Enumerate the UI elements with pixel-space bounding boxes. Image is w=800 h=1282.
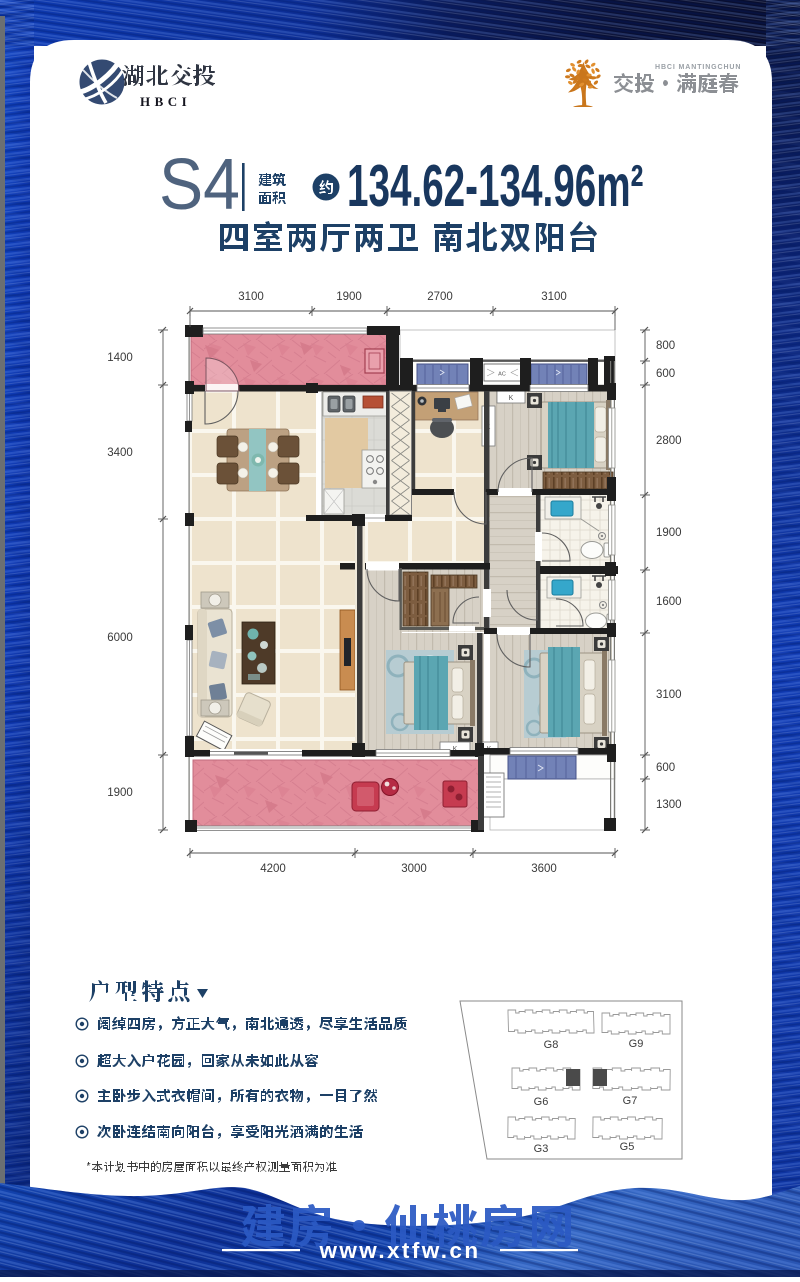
svg-text:600: 600 (656, 762, 675, 774)
svg-text:G9: G9 (629, 1038, 644, 1050)
svg-text:3600: 3600 (531, 863, 557, 875)
svg-text:6000: 6000 (107, 632, 133, 644)
svg-text:1300: 1300 (656, 799, 682, 811)
svg-text:G3: G3 (534, 1143, 549, 1155)
svg-text:2700: 2700 (427, 291, 453, 303)
svg-text:4200: 4200 (260, 863, 286, 875)
svg-text:HBCI MANTINGCHUN: HBCI MANTINGCHUN (655, 64, 741, 71)
svg-text:www.xtfw.cn: www.xtfw.cn (319, 1238, 481, 1263)
svg-text:S4: S4 (159, 143, 240, 224)
svg-text:AC: AC (498, 372, 506, 378)
svg-text:1900: 1900 (107, 787, 133, 799)
svg-text:1900: 1900 (336, 291, 362, 303)
svg-text:800: 800 (656, 340, 675, 352)
svg-text:600: 600 (656, 368, 675, 380)
svg-text:1400: 1400 (107, 352, 133, 364)
svg-text:G7: G7 (623, 1095, 638, 1107)
svg-text:2800: 2800 (656, 435, 682, 447)
svg-text:HBCI: HBCI (140, 94, 191, 109)
svg-text:1900: 1900 (656, 527, 682, 539)
svg-text:3000: 3000 (401, 863, 427, 875)
svg-text:134.62-134.96m²: 134.62-134.96m² (347, 153, 643, 219)
svg-text:G8: G8 (544, 1039, 559, 1051)
svg-text:3100: 3100 (541, 291, 567, 303)
svg-text:K: K (509, 395, 514, 402)
svg-text:3100: 3100 (656, 689, 682, 701)
svg-text:G6: G6 (534, 1096, 549, 1108)
svg-text:3400: 3400 (107, 447, 133, 459)
svg-text:G5: G5 (620, 1141, 635, 1153)
svg-text:1600: 1600 (656, 596, 682, 608)
svg-text:3100: 3100 (238, 291, 264, 303)
